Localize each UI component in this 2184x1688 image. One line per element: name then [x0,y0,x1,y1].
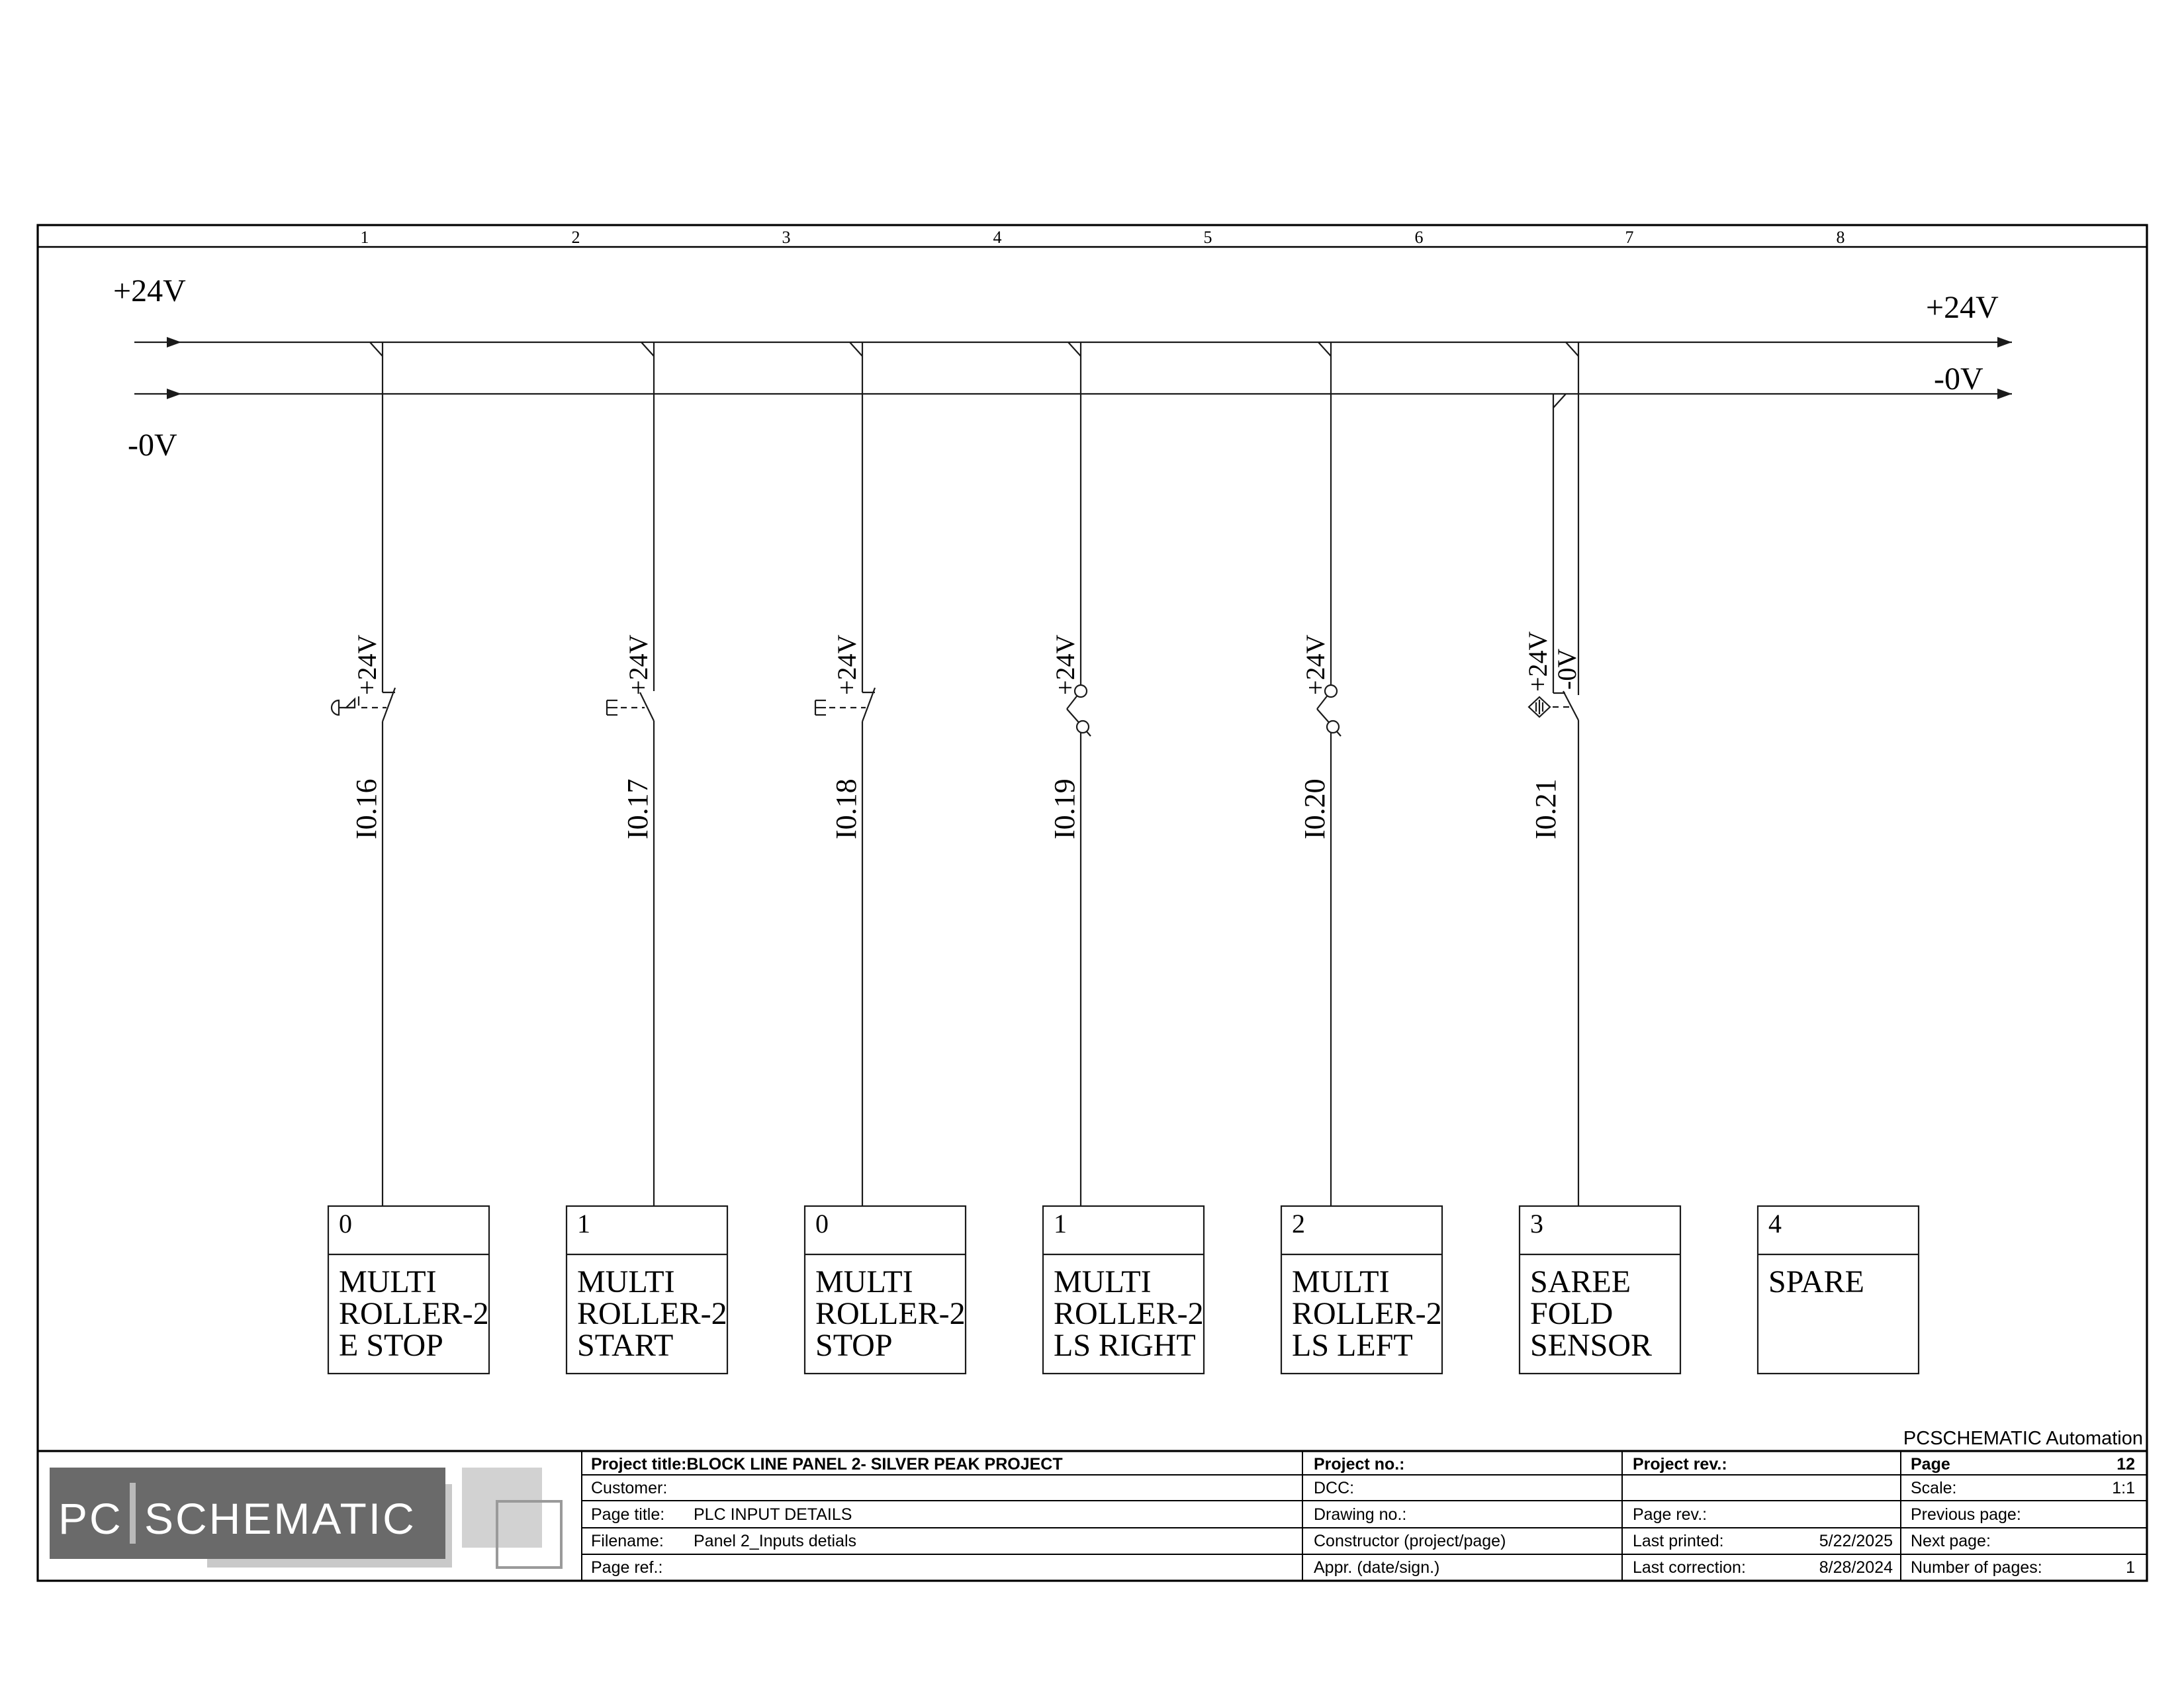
next-page-label: Next page: [1911,1532,1991,1550]
plc-input-label: MULTI ROLLER-2 LS LEFT [1292,1264,1450,1363]
plc-address-label: I0.20 [1298,778,1331,839]
plc-input-number: 3 [1530,1209,1543,1239]
rail-label-24v-left: +24V [113,273,186,308]
power-rail-24v: +24V +24V [113,273,2012,348]
proximity-sensor-icon [1529,697,1570,717]
branch-i017: +24V I0.17 [607,342,654,1206]
schematic-canvas: 1 2 3 4 5 6 7 8 +24V +24V -0V -0V [0,0,2184,1688]
plc-input-box-3: 1 MULTI ROLLER-2 LS RIGHT [1043,1206,1212,1374]
plc-input-box-6: 4 SPARE [1758,1206,1919,1374]
branch-supply-label: +24V [352,634,382,695]
schematic-page: 1 2 3 4 5 6 7 8 +24V +24V -0V -0V [0,0,2184,1688]
page-ref-label: Page ref.: [591,1558,662,1577]
plc-input-label: SPARE [1768,1264,1864,1299]
drawing-no-label: Drawing no.: [1314,1505,1406,1524]
pushbutton-actuator-icon [607,700,645,715]
branch-supply-label: +24V [1300,634,1330,695]
estop-mushroom-icon [332,696,387,715]
customer-label: Customer: [591,1479,667,1497]
plc-address-label: I0.21 [1529,778,1562,839]
last-correction-value: 8/28/2024 [1819,1558,1893,1577]
page-title-label: Page title: [591,1505,664,1524]
project-rev-label: Project rev.: [1633,1455,1727,1474]
pcschematic-logo: PC SCHEMATIC [50,1468,561,1568]
constructor-label: Constructor (project/page) [1314,1532,1506,1550]
column-number: 4 [993,228,1002,247]
logo-bar [130,1483,136,1544]
scale-label: Scale: [1911,1479,1956,1497]
plc-input-number: 0 [815,1209,829,1239]
rail-label-0v-right: -0V [1934,361,1983,397]
logo-schematic-text: SCHEMATIC [144,1494,416,1543]
plc-input-box-0: 0 MULTI ROLLER-2 E STOP [328,1206,497,1374]
plc-address-label: I0.17 [621,778,654,839]
logo-square [462,1468,542,1548]
plc-input-label: MULTI ROLLER-2 STOP [815,1264,974,1363]
plc-input-number: 2 [1292,1209,1305,1239]
power-rail-0v: -0V -0V [128,361,2012,463]
plc-input-label: MULTI ROLLER-2 START [577,1264,735,1363]
plc-input-label: MULTI ROLLER-2 LS RIGHT [1054,1264,1212,1363]
plc-input-number: 1 [1054,1209,1067,1239]
branch-supply-label: +24V [1523,631,1553,692]
branch-i020: +24V I0.20 [1298,342,1341,1206]
column-number: 2 [572,228,580,247]
page-rev-label: Page rev.: [1633,1505,1707,1524]
plc-address-label: I0.18 [830,778,862,839]
filename-value: Panel 2_Inputs detials [694,1532,856,1550]
branch-supply-label: +24V [832,634,862,695]
plc-input-number: 0 [339,1209,352,1239]
plc-input-label: MULTI ROLLER-2 E STOP [339,1264,497,1363]
project-title-row: Project title:BLOCK LINE PANEL 2- SILVER… [591,1455,1063,1474]
column-number: 7 [1625,228,1634,247]
column-number: 8 [1837,228,1845,247]
branch-supply-label: +24V [1050,634,1080,695]
column-number: 5 [1204,228,1212,247]
column-ruler: 1 2 3 4 5 6 7 8 [361,228,1845,247]
last-printed-value: 5/22/2025 [1819,1532,1893,1550]
column-number: 3 [782,228,791,247]
rail-arrow-icon [167,337,181,348]
plc-input-box-5: 3 SAREE FOLD SENSOR [1520,1206,1680,1374]
rail-arrow-icon [1997,337,2012,348]
plc-input-number: 4 [1768,1209,1782,1239]
logo-pc-text: PC [58,1494,123,1543]
number-of-pages-value: 1 [2126,1558,2135,1577]
branch-i016: +24V I0.16 [332,342,395,1206]
branch-supply2-label: -0V [1552,649,1582,690]
branch-supply-label: +24V [623,634,653,695]
page-label: Page [1911,1455,1950,1474]
plc-address-label: I0.16 [350,778,383,839]
pushbutton-actuator-icon [815,700,866,715]
rail-label-24v-right: +24V [1926,290,1999,325]
plc-input-label: SAREE FOLD SENSOR [1530,1264,1652,1363]
branch-i021: +24V -0V I0.21 [1523,342,1582,1206]
scale-value: 1:1 [2112,1479,2135,1497]
filename-label: Filename: [591,1532,664,1550]
plc-input-number: 1 [577,1209,590,1239]
pcschematic-automation-label: PCSCHEMATIC Automation [1903,1428,2143,1449]
drawing-frame [38,225,2147,1581]
plc-input-box-4: 2 MULTI ROLLER-2 LS LEFT [1281,1206,1450,1374]
appr-label: Appr. (date/sign.) [1314,1558,1439,1577]
column-number: 6 [1415,228,1424,247]
project-no-label: Project no.: [1314,1455,1405,1474]
title-block: PC SCHEMATIC Project title:BLOCK LINE PA… [38,1451,2147,1581]
last-correction-label: Last correction: [1633,1558,1746,1577]
plc-input-box-2: 0 MULTI ROLLER-2 STOP [805,1206,974,1374]
last-printed-label: Last printed: [1633,1532,1724,1550]
plc-address-label: I0.19 [1048,778,1081,839]
dcc-label: DCC: [1314,1479,1354,1497]
branch-i019: +24V I0.19 [1048,342,1091,1206]
rail-arrow-icon [167,389,181,399]
page-number-value: 12 [2116,1455,2135,1474]
plc-input-box-1: 1 MULTI ROLLER-2 START [567,1206,735,1374]
page-title-value: PLC INPUT DETAILS [694,1505,852,1524]
number-of-pages-label: Number of pages: [1911,1558,2042,1577]
branch-i018: +24V I0.18 [815,342,875,1206]
rail-arrow-icon [1997,389,2012,399]
column-number: 1 [361,228,369,247]
rail-label-0v-left: -0V [128,428,177,463]
previous-page-label: Previous page: [1911,1505,2021,1524]
